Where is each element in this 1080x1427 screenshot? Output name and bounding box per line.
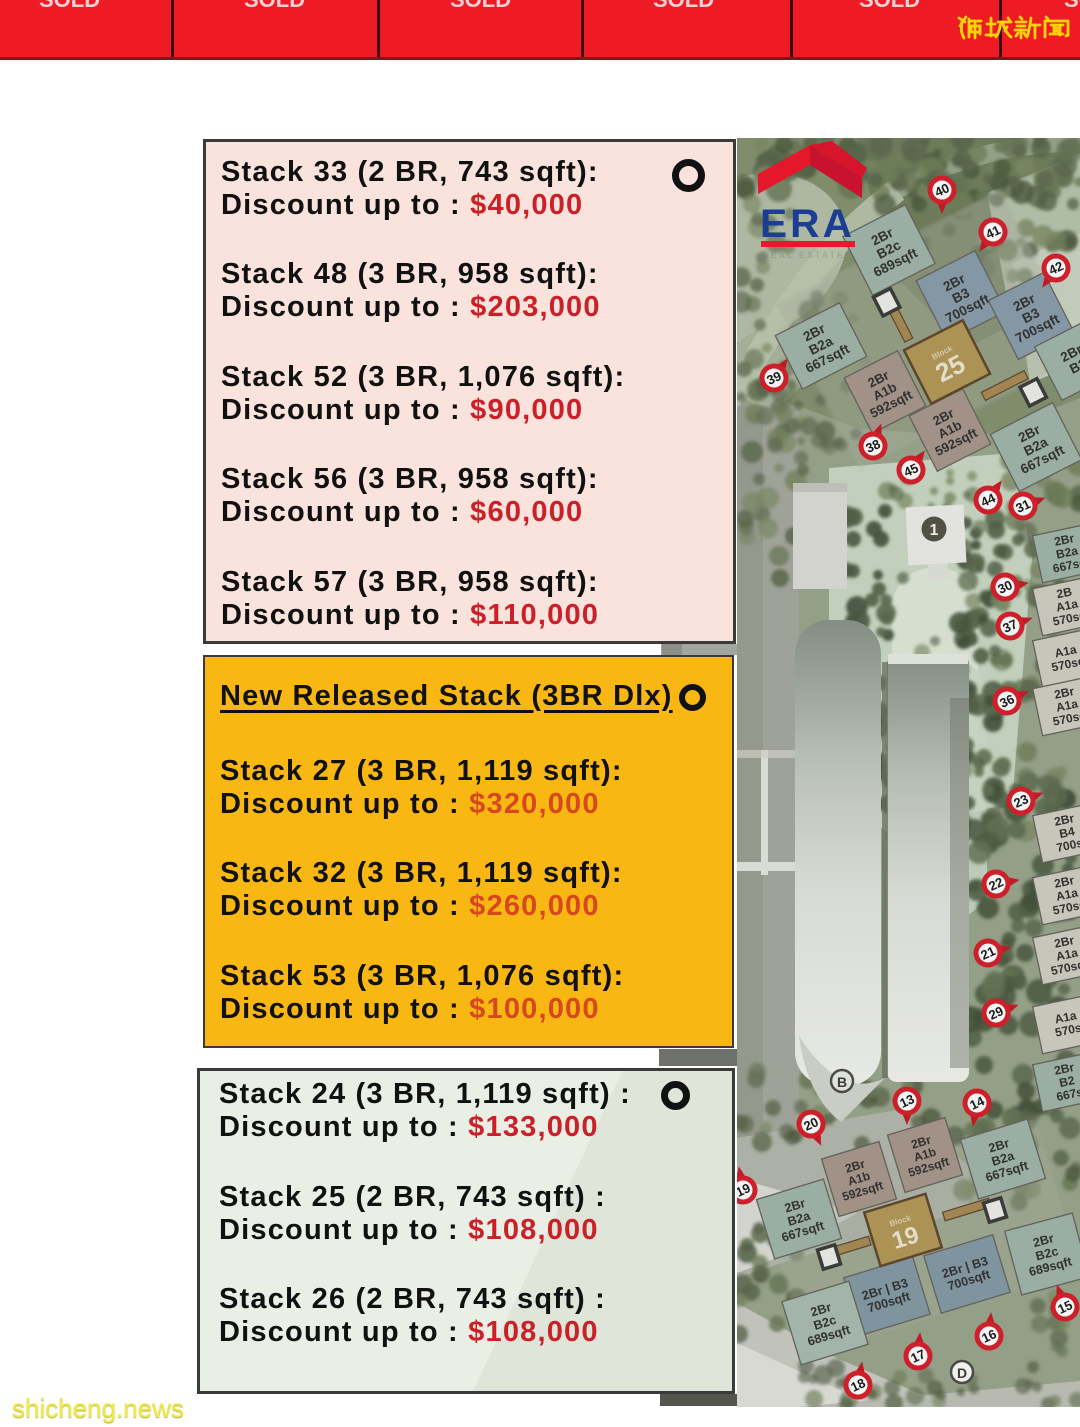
svg-text:REAL ESTATE: REAL ESTATE: [762, 250, 845, 260]
svg-text:ERA: ERA: [760, 202, 855, 246]
svg-text:B: B: [837, 1074, 847, 1090]
svg-text:D: D: [957, 1365, 967, 1381]
